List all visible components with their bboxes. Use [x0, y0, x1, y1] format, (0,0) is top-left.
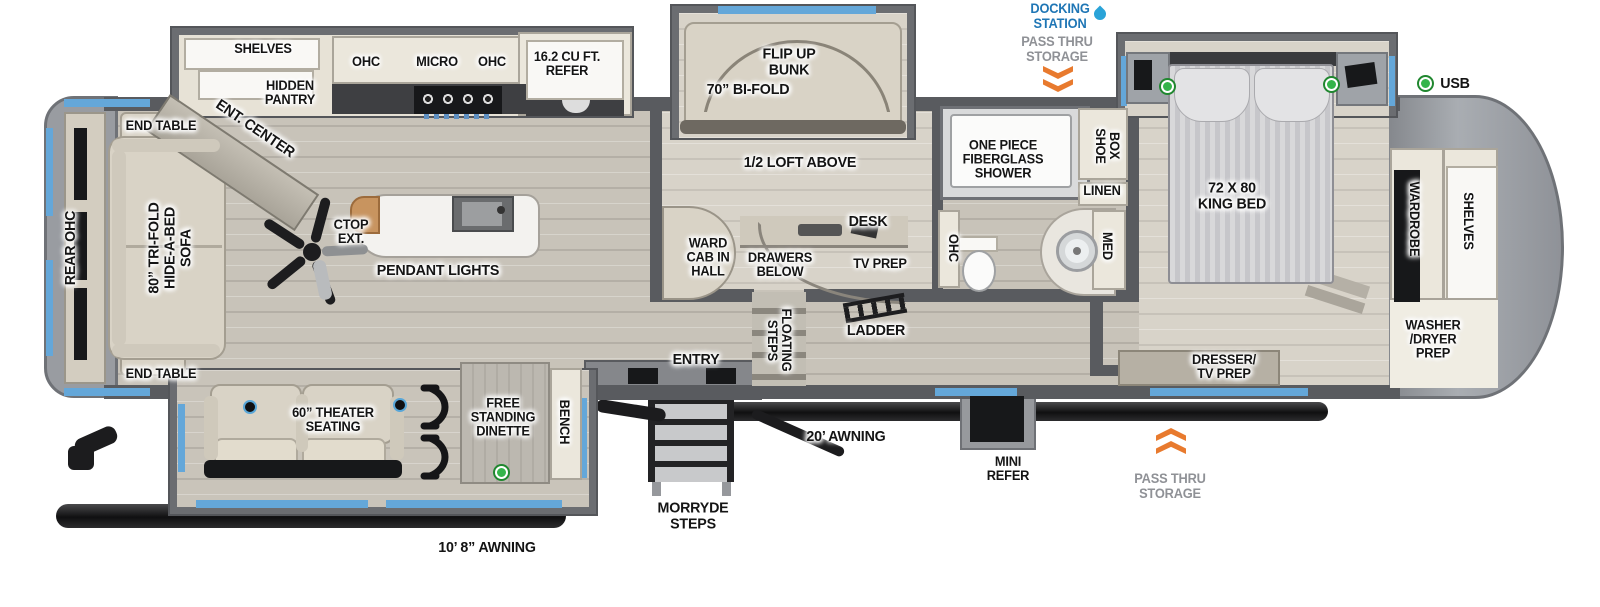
label-end-table-top: END TABLE	[126, 119, 197, 133]
label-ladder: LADDER	[847, 323, 905, 339]
label-rear-ohc: REAR OHC	[63, 211, 79, 285]
label-dinette: FREE STANDING DINETTE	[471, 397, 536, 440]
label-king-bed: 72 X 80 KING BED	[1198, 180, 1266, 212]
pass-thru-arrow-up-icon	[1156, 441, 1186, 454]
ceiling-fan-icon	[250, 190, 374, 314]
label-med: MED	[1100, 232, 1114, 260]
stove-knobs	[424, 114, 490, 119]
floorplan: SHELVES HIDDEN PANTRY OHC MICRO OHC 16.2…	[0, 0, 1600, 607]
label-sofa: 80” TRI-FOLD HIDE-A-BED SOFA	[146, 202, 193, 293]
label-flip-up-bunk: FLIP UP BUNK	[762, 46, 815, 78]
usb-port-dot	[495, 466, 508, 479]
label-shoe-box: SHOE BOX	[1093, 128, 1121, 164]
sofa-armrest	[112, 139, 220, 152]
landing-gear-foot	[68, 446, 94, 470]
rear-window	[46, 260, 53, 356]
sofa-back	[112, 150, 126, 346]
label-dresser: DRESSER/ TV PREP	[1192, 353, 1256, 381]
cooktop	[414, 86, 502, 114]
label-desk: DESK	[849, 214, 888, 230]
theater-seat-base	[204, 460, 402, 478]
label-entry: ENTRY	[673, 352, 720, 368]
water-drop-icon	[1092, 6, 1109, 23]
label-loft: 1/2 LOFT ABOVE	[744, 155, 856, 171]
label-usb: USB	[1440, 76, 1470, 92]
label-shower: ONE PIECE FIBERGLASS SHOWER	[963, 139, 1044, 182]
island-faucet	[497, 206, 505, 214]
desk-keyboard	[798, 224, 842, 236]
label-washer-dryer: WASHER /DRYER PREP	[1405, 319, 1460, 362]
label-front-shelves: SHELVES	[1461, 192, 1475, 250]
sofa-armrest	[112, 344, 220, 357]
label-awning-rear: 10’ 8” AWNING	[438, 540, 536, 556]
bifold-base	[680, 120, 906, 134]
bunk-window	[718, 6, 876, 14]
slide-window	[196, 500, 368, 508]
pillow	[1174, 68, 1250, 122]
label-ohc-right: OHC	[478, 55, 506, 69]
entry-mat	[706, 368, 736, 384]
label-pass-thru-top: PASS THRU STORAGE	[1021, 35, 1092, 65]
pass-thru-arrow-down-icon	[1043, 66, 1073, 79]
label-theater-seating: 60” THEATER SEATING	[292, 406, 374, 434]
cup-holder	[243, 400, 257, 414]
label-awning-main: 20’ AWNING	[806, 429, 885, 445]
label-micro: MICRO	[416, 55, 458, 69]
label-bi-fold: 70” BI-FOLD	[707, 82, 790, 98]
rear-ohc-slot	[74, 288, 87, 360]
usb-legend-dot	[1419, 77, 1432, 90]
label-pass-thru-bottom: PASS THRU STORAGE	[1134, 472, 1205, 502]
sink-drain	[1073, 247, 1081, 255]
theater-seat-back	[210, 384, 302, 444]
label-docking-station: DOCKING STATION	[1030, 2, 1089, 32]
label-ward-cab: WARD CAB IN HALL	[686, 237, 729, 280]
bedroom-tv	[1345, 62, 1378, 88]
label-end-table-bottom: END TABLE	[126, 367, 197, 381]
label-floating-steps: FLOATING STEPS	[765, 308, 793, 371]
label-morryde-steps: MORRYDE STEPS	[658, 500, 729, 532]
bed-window	[1389, 56, 1395, 106]
entry-mat	[628, 368, 658, 384]
mini-refer-door	[970, 396, 1024, 442]
label-tv-prep: TV PREP	[853, 257, 907, 271]
slide-window	[178, 404, 185, 472]
label-drawers-below: DRAWERS BELOW	[748, 251, 812, 279]
usb-port-dot	[1325, 78, 1338, 91]
slide-window	[386, 500, 562, 508]
label-refer: 16.2 CU FT. REFER	[534, 50, 600, 78]
window	[64, 388, 150, 396]
label-hidden-pantry: HIDDEN PANTRY	[265, 79, 315, 107]
armrest	[204, 396, 218, 460]
window	[935, 388, 1017, 396]
cup-holder	[393, 398, 407, 412]
pass-thru-arrow-down-icon	[1043, 79, 1073, 92]
label-shelves-pantry: SHELVES	[234, 42, 292, 56]
label-mini-refer: MINI REFER	[987, 455, 1030, 483]
dinette-chairs-icon	[420, 382, 464, 482]
label-pendant-lights: PENDANT LIGHTS	[377, 263, 499, 279]
step-foot	[722, 482, 731, 496]
window	[1150, 388, 1308, 396]
label-wardrobe: WARDROBE	[1407, 182, 1421, 257]
label-linen: LINEN	[1083, 184, 1121, 198]
label-bath-ohc: OHC	[946, 234, 960, 262]
rear-ohc-slot	[74, 128, 87, 200]
nightstand-window	[1134, 60, 1152, 90]
rear-window	[46, 128, 53, 216]
window	[64, 99, 150, 107]
label-bench: BENCH	[557, 400, 571, 445]
pillow	[1254, 68, 1330, 122]
bunk-room-wall	[650, 104, 662, 300]
label-ohc-left: OHC	[352, 55, 380, 69]
pass-thru-arrow-up-icon	[1156, 428, 1186, 441]
step-foot	[652, 482, 661, 496]
toilet-bowl	[962, 250, 996, 292]
label-ctop-ext: CTOP EXT.	[334, 218, 369, 246]
usb-port-dot	[1161, 80, 1174, 93]
island-sink-basin	[462, 202, 502, 226]
